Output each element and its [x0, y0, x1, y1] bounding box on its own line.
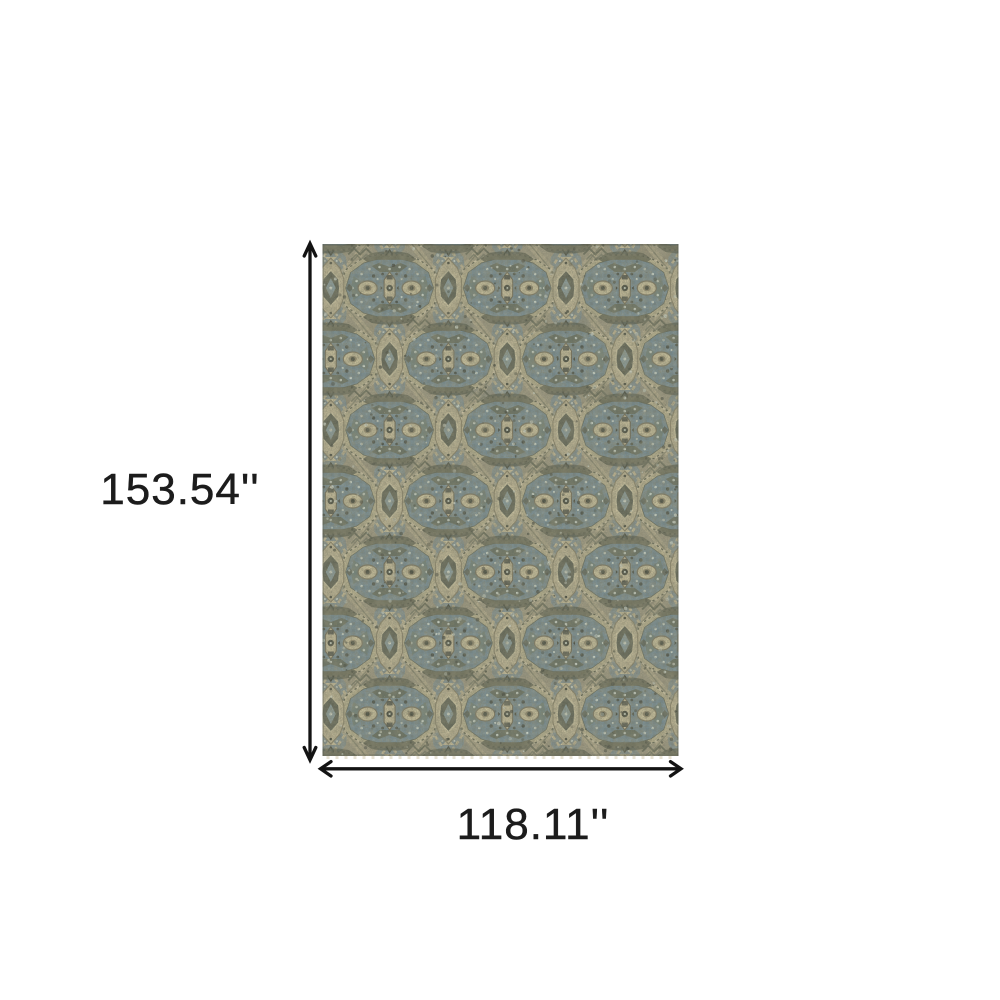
svg-text:153.54'': 153.54'' — [100, 465, 259, 514]
svg-text:118.11'': 118.11'' — [457, 800, 610, 849]
